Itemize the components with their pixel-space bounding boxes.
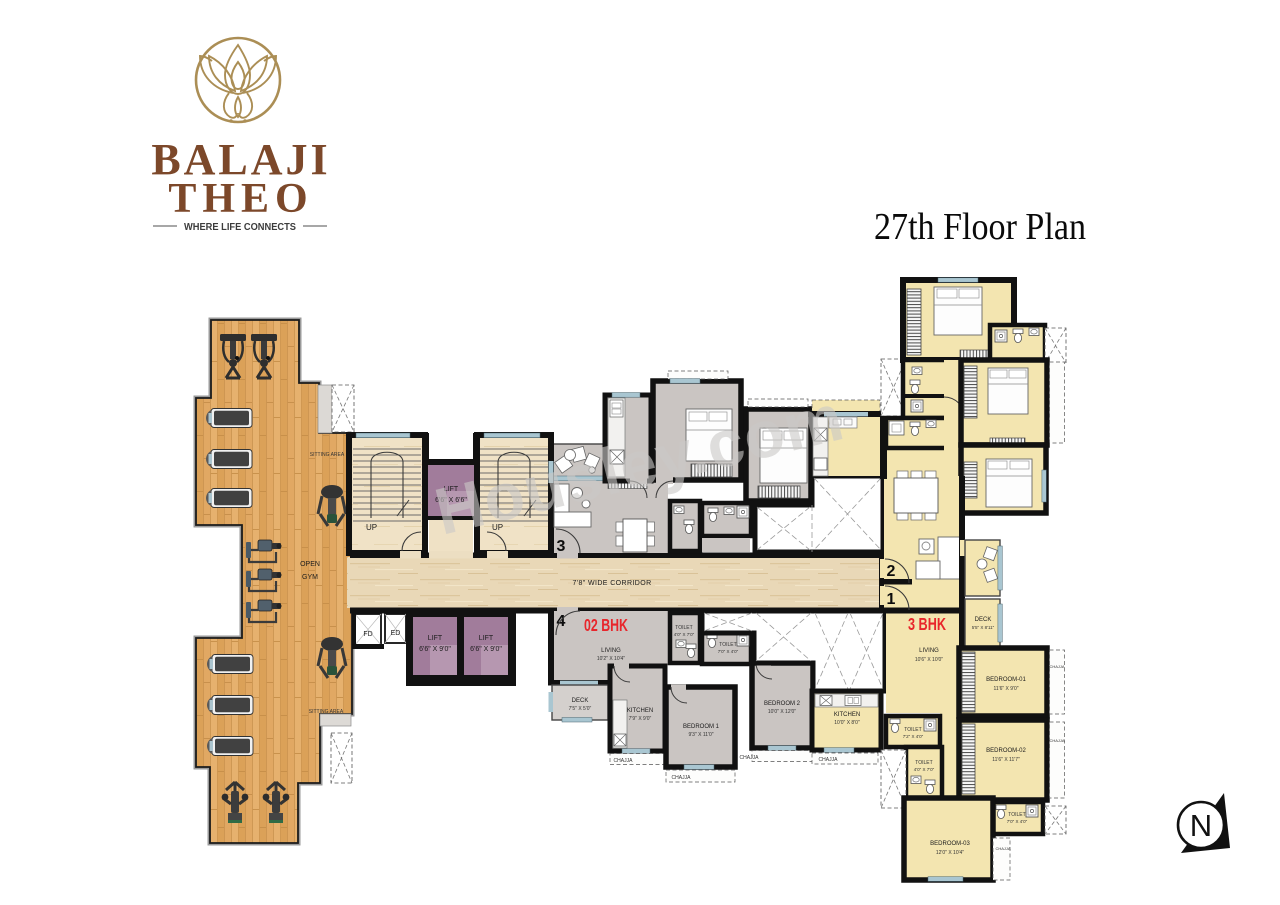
svg-text:10'2" X 10'4": 10'2" X 10'4" [597,656,625,662]
svg-text:ED: ED [391,630,401,637]
svg-text:10'0" X 12'0": 10'0" X 12'0" [768,709,796,715]
svg-text:CHAJJA: CHAJJA [740,755,760,761]
svg-text:THEO: THEO [168,176,313,222]
svg-text:TOILET: TOILET [675,625,692,631]
svg-text:CHAJJA: CHAJJA [672,775,692,781]
svg-text:LIVING: LIVING [919,648,939,654]
svg-text:OPEN: OPEN [300,561,320,568]
svg-text:CHAJJA: CHAJJA [1049,738,1064,743]
svg-text:4'0" X 7'0": 4'0" X 7'0" [674,632,695,637]
svg-text:BEDROOM 2: BEDROOM 2 [764,701,801,707]
svg-text:FD: FD [363,631,372,638]
svg-text:7'2" X 4'0": 7'2" X 4'0" [903,734,924,739]
svg-text:3: 3 [557,538,566,555]
svg-text:3 BHK: 3 BHK [908,614,946,634]
svg-text:TOILET: TOILET [719,642,736,648]
svg-text:5'5" X 8'11": 5'5" X 8'11" [972,625,995,630]
svg-text:6'6" X 9'0": 6'6" X 9'0" [419,646,451,653]
svg-text:9'3" X 11'0": 9'3" X 11'0" [688,732,713,738]
svg-text:LIFT: LIFT [428,635,443,642]
svg-text:7'5" X 5'0": 7'5" X 5'0" [569,706,592,712]
svg-text:10'6" X 10'0": 10'6" X 10'0" [915,657,943,663]
svg-text:7'0" X 4'0": 7'0" X 4'0" [718,649,739,654]
svg-text:LIFT: LIFT [479,635,494,642]
svg-text:2: 2 [887,563,896,580]
svg-text:WHERE LIFE CONNECTS: WHERE LIFE CONNECTS [184,221,296,233]
svg-text:CHAJJA: CHAJJA [995,846,1010,851]
svg-text:TOILET: TOILET [915,760,932,766]
svg-text:CHAJJA: CHAJJA [1049,664,1064,669]
svg-text:1: 1 [887,591,896,608]
svg-text:BEDROOM-03: BEDROOM-03 [930,841,970,847]
svg-text:DECK: DECK [572,698,589,704]
svg-text:DECK: DECK [975,617,992,623]
svg-text:CHAJJA: CHAJJA [819,757,839,763]
svg-text:LIVING: LIVING [601,648,621,654]
svg-text:KITCHEN: KITCHEN [834,712,860,718]
svg-text:BEDROOM 1: BEDROOM 1 [683,724,720,730]
svg-text:7'8" WIDE CORRIDOR: 7'8" WIDE CORRIDOR [572,580,651,587]
svg-text:7'9" X 9'0": 7'9" X 9'0" [629,716,652,722]
svg-text:TOILET: TOILET [1008,812,1025,818]
svg-text:10'0" X 8'0": 10'0" X 8'0" [834,720,860,726]
svg-text:GYM: GYM [302,574,318,581]
svg-text:7'0" X 4'0": 7'0" X 4'0" [1007,819,1028,824]
svg-text:BEDROOM-01: BEDROOM-01 [986,677,1026,683]
svg-text:KITCHEN: KITCHEN [627,708,653,714]
svg-text:11'6" X 11'7": 11'6" X 11'7" [992,757,1020,763]
svg-text:27th Floor Plan: 27th Floor Plan [874,206,1086,248]
svg-text:CHAJJA: CHAJJA [614,758,634,764]
svg-text:02 BHK: 02 BHK [584,615,628,635]
svg-text:6'6" X 9'0": 6'6" X 9'0" [470,646,502,653]
svg-text:4: 4 [557,613,566,630]
svg-text:N: N [1190,808,1212,843]
svg-text:UP: UP [366,523,377,532]
svg-text:4'0" X 7'0": 4'0" X 7'0" [914,767,935,772]
svg-text:11'6" X 9'0": 11'6" X 9'0" [993,686,1018,692]
svg-text:SITTING AREA: SITTING AREA [309,709,344,715]
svg-text:SITTING AREA: SITTING AREA [310,452,345,458]
svg-text:BEDROOM-02: BEDROOM-02 [986,748,1026,754]
svg-text:12'0" X 10'4": 12'0" X 10'4" [936,850,964,856]
svg-text:TOILET: TOILET [904,727,921,733]
